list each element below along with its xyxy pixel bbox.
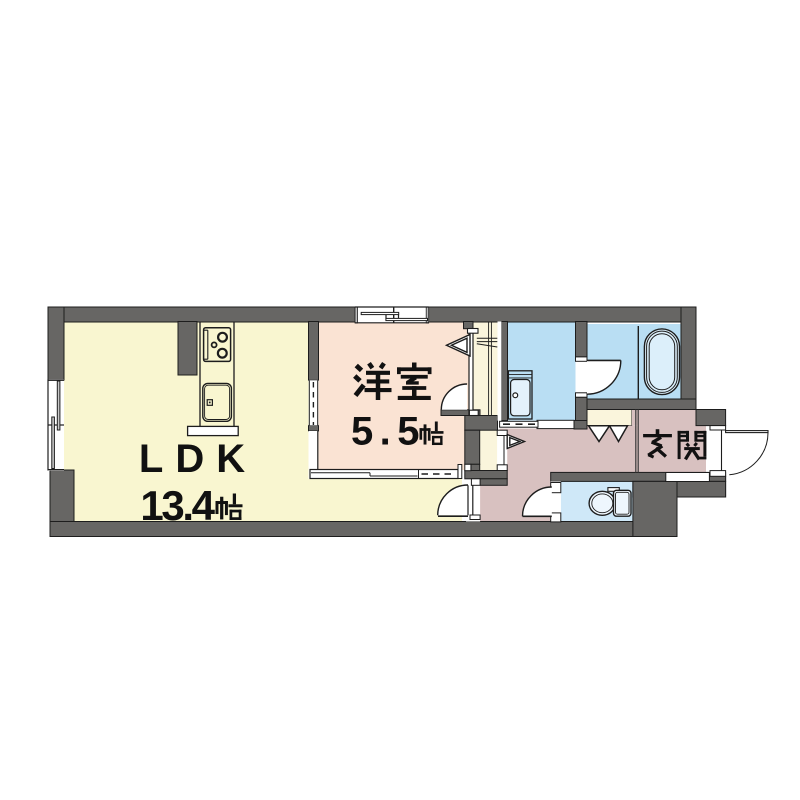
svg-text:5.5: 5.5 [351,409,426,453]
svg-text:13.4: 13.4 [140,482,215,529]
svg-text:LDK: LDK [139,437,257,481]
